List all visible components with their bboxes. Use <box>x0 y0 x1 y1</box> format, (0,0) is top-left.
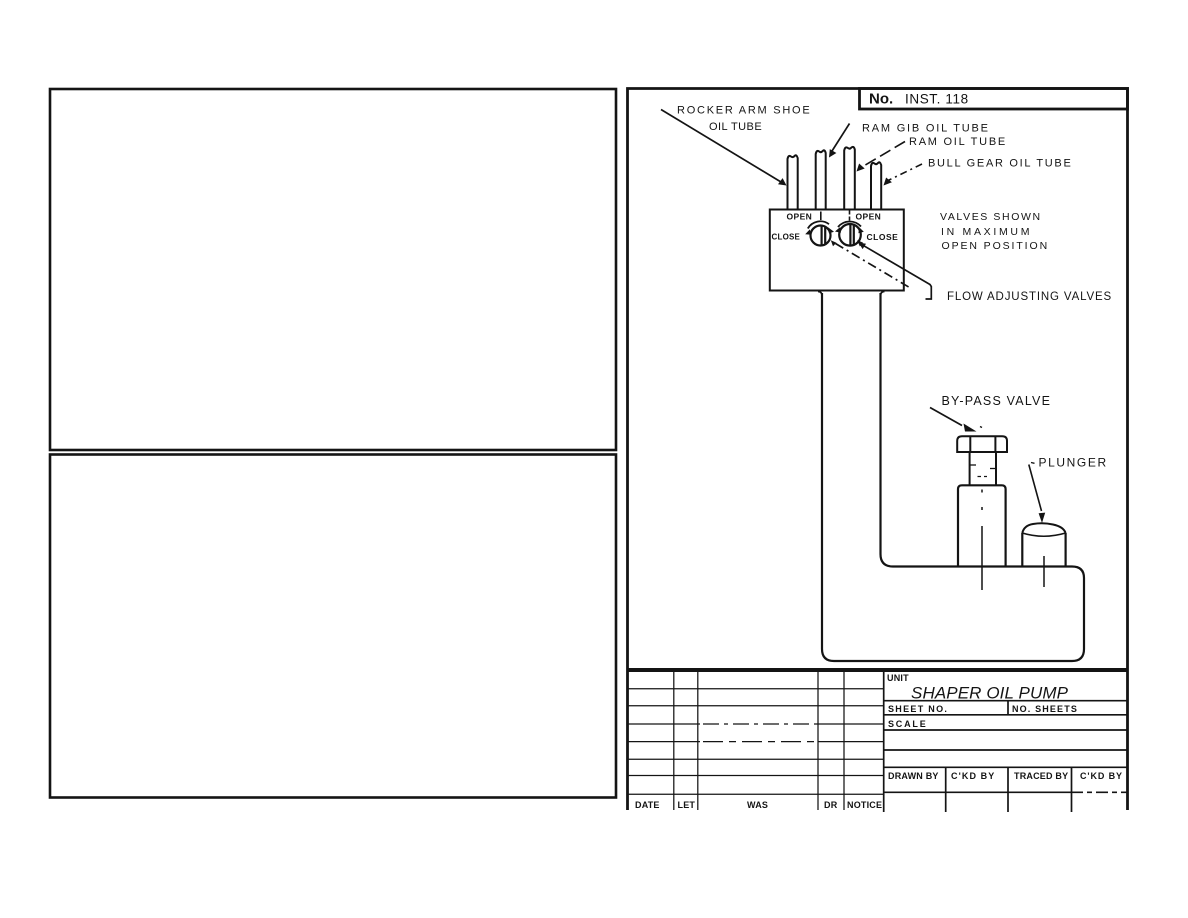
svg-text:C'KD BY: C'KD BY <box>1080 771 1123 781</box>
svg-text:DRAWN BY: DRAWN BY <box>888 771 939 781</box>
svg-text:RAM GIB OIL TUBE: RAM GIB OIL TUBE <box>862 123 990 135</box>
svg-text:CLOSE: CLOSE <box>867 232 899 242</box>
svg-text:TRACED BY: TRACED BY <box>1014 771 1068 781</box>
svg-text:UNIT: UNIT <box>887 673 909 683</box>
svg-text:VALVES SHOWN: VALVES SHOWN <box>940 211 1042 223</box>
svg-text:DR: DR <box>824 800 838 810</box>
svg-text:C'KD BY: C'KD BY <box>951 771 995 781</box>
svg-text:SCALE: SCALE <box>888 719 928 729</box>
svg-text:BY-PASS VALVE: BY-PASS VALVE <box>942 394 1052 408</box>
svg-text:OPEN POSITION: OPEN POSITION <box>942 240 1050 252</box>
svg-text:SHAPER OIL PUMP: SHAPER OIL PUMP <box>911 684 1069 703</box>
svg-text:BULL GEAR OIL TUBE: BULL GEAR OIL TUBE <box>928 158 1073 170</box>
svg-text:WAS: WAS <box>747 800 768 810</box>
svg-text:DATE: DATE <box>635 800 660 810</box>
svg-text:OIL TUBE: OIL TUBE <box>709 121 762 133</box>
svg-text:SHEET NO.: SHEET NO. <box>888 704 948 714</box>
svg-text:LET: LET <box>678 800 696 810</box>
svg-text:No.: No. <box>869 91 893 108</box>
svg-text:NO. SHEETS: NO. SHEETS <box>1012 704 1078 714</box>
svg-text:CLOSE: CLOSE <box>772 233 801 242</box>
svg-text:OPEN: OPEN <box>787 212 813 222</box>
svg-text:IN MAXIMUM: IN MAXIMUM <box>941 226 1032 238</box>
svg-text:RAM OIL TUBE: RAM OIL TUBE <box>909 136 1007 148</box>
svg-text:NOTICE: NOTICE <box>847 800 882 810</box>
svg-text:FLOW ADJUSTING VALVES: FLOW ADJUSTING VALVES <box>947 291 1112 303</box>
svg-text:PLUNGER: PLUNGER <box>1039 456 1108 470</box>
svg-text:OPEN: OPEN <box>856 212 882 222</box>
svg-text:ROCKER ARM SHOE: ROCKER ARM SHOE <box>677 105 811 117</box>
svg-text:INST. 118: INST. 118 <box>905 92 969 107</box>
